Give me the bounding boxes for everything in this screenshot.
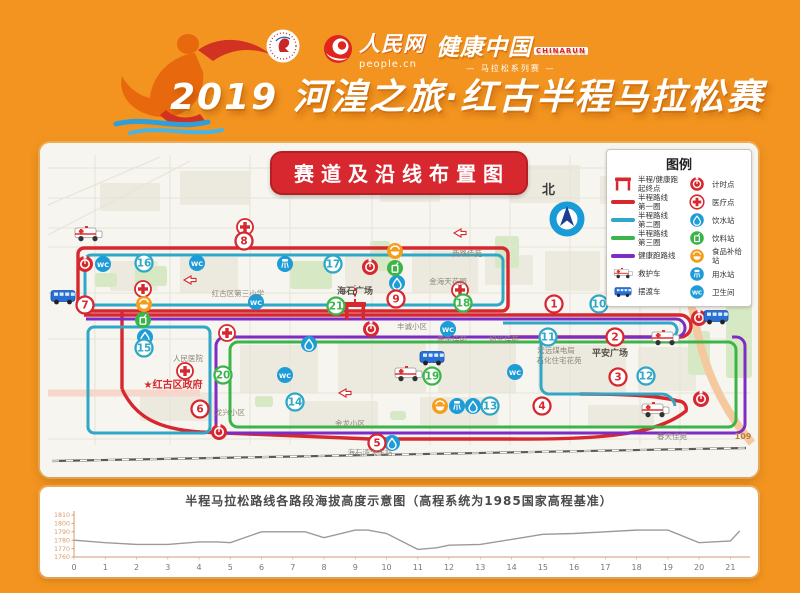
svg-text:0: 0 xyxy=(71,563,76,572)
svg-text:1810: 1810 xyxy=(54,512,70,519)
legend-item-label: 半程路线 第一圈 xyxy=(638,193,668,211)
km-marker-15: 15 xyxy=(136,340,153,357)
drink-icon xyxy=(135,312,151,328)
svg-text:7: 7 xyxy=(81,300,88,312)
line-green-swatch xyxy=(611,236,635,240)
event-title: 2019 河湟之旅·红古半程马拉松赛 xyxy=(170,68,750,120)
drink-icon xyxy=(387,260,403,276)
svg-text:15: 15 xyxy=(137,343,152,355)
km-marker-12: 12 xyxy=(638,368,655,385)
svg-text:WC: WC xyxy=(692,290,702,296)
legend-item-right-0: 计时点 xyxy=(684,175,748,193)
svg-text:1770: 1770 xyxy=(54,546,70,553)
svg-text:14: 14 xyxy=(506,563,516,572)
svg-text:9: 9 xyxy=(353,563,358,572)
medical-icon xyxy=(219,325,235,341)
people-cn-logo: 人民网 people.cn xyxy=(322,28,425,70)
map-title-badge: 赛道及沿线布置图 xyxy=(270,151,528,195)
legend-right-column: 计时点医疗点饮水站饮料站食品补给站用水站WC卫生间 xyxy=(684,175,748,301)
legend-item-label: 医疗点 xyxy=(712,198,735,207)
legend-item-right-2: 饮水站 xyxy=(684,211,748,229)
svg-text:WC: WC xyxy=(97,261,109,269)
svg-text:6: 6 xyxy=(196,404,203,416)
legend-item-left-4: 健康跑路线 xyxy=(610,247,684,265)
km-marker-9: 9 xyxy=(388,291,405,308)
legend-item-label: 健康跑路线 xyxy=(638,251,676,260)
legend-item-right-4: 食品补给站 xyxy=(684,247,748,265)
km-marker-16: 16 xyxy=(136,255,153,272)
km-marker-10: 10 xyxy=(591,296,608,313)
medical-icon xyxy=(135,281,151,297)
legend-item-left-3: 半程路线 第三圈 xyxy=(610,229,684,247)
km-marker-4: 4 xyxy=(534,398,551,415)
legend-item-left-0: 半程/健康跑 起终点 xyxy=(610,175,684,193)
north-indicator: 北 xyxy=(538,179,588,244)
map-label: 金海天花园 xyxy=(429,276,467,286)
km-marker-20: 20 xyxy=(215,367,232,384)
km-marker-18: 18 xyxy=(455,295,472,312)
km-marker-11: 11 xyxy=(540,329,557,346)
svg-text:3: 3 xyxy=(165,563,170,572)
wc-icon: WC xyxy=(690,285,704,299)
svg-text:WC: WC xyxy=(442,326,454,334)
km-marker-2: 2 xyxy=(607,329,624,346)
svg-text:7: 7 xyxy=(290,563,295,572)
health-china-name: 健康中国CHINARUN xyxy=(436,28,586,62)
spray-icon xyxy=(449,398,465,414)
svg-text:12: 12 xyxy=(639,371,654,383)
food-icon xyxy=(387,243,403,259)
timing-icon xyxy=(77,256,93,272)
legend-item-left-1: 半程路线 第一圈 xyxy=(610,193,684,211)
legend-item-right-5: 用水站 xyxy=(684,265,748,283)
north-label: 北 xyxy=(542,179,588,198)
map-label: 人民医院 xyxy=(173,353,203,363)
map-label: 西路佳苑 xyxy=(452,248,482,258)
svg-text:16: 16 xyxy=(569,563,579,572)
course-map-panel: WCWCWCWCWCWC 123456789101112131415161718… xyxy=(40,143,758,477)
svg-text:1760: 1760 xyxy=(54,554,70,561)
legend-item-label: 半程路线 第二圈 xyxy=(638,211,668,229)
drink-icon xyxy=(690,231,704,245)
bus-icon xyxy=(615,287,631,296)
svg-text:4: 4 xyxy=(538,401,545,413)
svg-text:WC: WC xyxy=(250,299,262,307)
legend-item-label: 救护车 xyxy=(638,269,661,278)
wc-icon: WC xyxy=(189,255,205,271)
map-label: 宏远煤电局 xyxy=(537,345,575,355)
legend-item-label: 用水站 xyxy=(712,270,735,279)
food-icon xyxy=(690,249,704,263)
legend-left-column: 半程/健康跑 起终点半程路线 第一圈半程路线 第二圈半程路线 第三圈健康跑路线救… xyxy=(610,175,684,301)
timing-icon xyxy=(362,259,378,275)
svg-text:21: 21 xyxy=(329,301,344,313)
svg-text:17: 17 xyxy=(326,259,341,271)
svg-text:9: 9 xyxy=(392,294,399,306)
legend-item-left-6: 摆渡车 xyxy=(610,283,684,301)
map-label: 109 xyxy=(735,432,752,441)
km-marker-3: 3 xyxy=(610,369,627,386)
elevation-line xyxy=(74,530,740,549)
km-marker-6: 6 xyxy=(192,401,209,418)
svg-text:19: 19 xyxy=(663,563,673,572)
people-cn-name: 人民网 xyxy=(359,28,425,58)
km-marker-7: 7 xyxy=(77,297,94,314)
gate-icon xyxy=(615,178,631,191)
wc-icon: WC xyxy=(277,367,293,383)
svg-text:1: 1 xyxy=(550,299,557,311)
legend-item-label: 计时点 xyxy=(712,180,735,189)
km-marker-17: 17 xyxy=(325,256,342,273)
map-label: 旭光佳苑 xyxy=(489,334,519,344)
legend-item-label: 饮料站 xyxy=(712,234,735,243)
people-cn-swirl-icon xyxy=(322,33,354,65)
drop-icon xyxy=(465,398,481,414)
map-label: 红古区第三小学 xyxy=(212,288,265,298)
legend-item-right-6: WC卫生间 xyxy=(684,283,748,301)
km-marker-19: 19 xyxy=(424,368,441,385)
svg-text:18: 18 xyxy=(632,563,642,572)
timing-icon xyxy=(690,177,704,191)
svg-text:WC: WC xyxy=(509,369,521,377)
legend-item-label: 半程路线 第三圈 xyxy=(638,229,668,247)
legend-item-label: 卫生间 xyxy=(712,288,735,297)
svg-text:17: 17 xyxy=(600,563,610,572)
svg-text:13: 13 xyxy=(483,401,498,413)
svg-text:20: 20 xyxy=(694,563,704,572)
map-label: 春天佳苑 xyxy=(657,431,687,441)
map-label: 海石广场 xyxy=(337,285,373,297)
spray-icon xyxy=(277,256,293,272)
timing-icon xyxy=(211,424,227,440)
food-icon xyxy=(432,398,448,414)
elevation-chart-title: 半程马拉松路线各路段海拔高度示意图（高程系统为1985国家高程基准） xyxy=(40,492,758,509)
timing-icon xyxy=(693,391,709,407)
svg-text:19: 19 xyxy=(425,371,440,383)
legend-item-left-2: 半程路线 第二圈 xyxy=(610,211,684,229)
svg-text:11: 11 xyxy=(541,332,556,344)
svg-text:13: 13 xyxy=(475,563,485,572)
map-label: 康乐佳苑 xyxy=(437,334,467,344)
svg-text:1800: 1800 xyxy=(54,521,70,528)
map-label: ★红古区政府 xyxy=(144,378,203,391)
map-legend: 图例 半程/健康跑 起终点半程路线 第一圈半程路线 第二圈半程路线 第三圈健康跑… xyxy=(606,149,752,307)
map-label: 海石湾大车站 xyxy=(348,447,393,457)
legend-title: 图例 xyxy=(610,154,748,173)
svg-text:12: 12 xyxy=(444,563,454,572)
drop-icon xyxy=(690,213,704,227)
medical-icon xyxy=(690,195,704,209)
km-marker-14: 14 xyxy=(287,394,304,411)
food-icon xyxy=(136,296,152,312)
map-label: 平安广场 xyxy=(592,347,628,359)
svg-text:1780: 1780 xyxy=(54,537,70,544)
legend-item-label: 摆渡车 xyxy=(638,287,661,296)
elevation-chart: 1760177017801790180018100123456789101112… xyxy=(40,509,758,577)
drop-icon xyxy=(389,275,405,291)
svg-text:8: 8 xyxy=(240,236,247,248)
svg-text:20: 20 xyxy=(216,370,231,382)
legend-item-right-1: 医疗点 xyxy=(684,193,748,211)
header: 人民网 people.cn 健康中国CHINARUN — 马拉松系列赛 — 20… xyxy=(0,0,800,143)
svg-text:14: 14 xyxy=(288,397,303,409)
svg-text:5: 5 xyxy=(228,563,233,572)
wc-icon: WC xyxy=(507,364,523,380)
spray-icon xyxy=(690,267,704,281)
svg-text:WC: WC xyxy=(279,372,291,380)
line-red-swatch xyxy=(611,200,635,204)
ambulance-icon xyxy=(614,267,632,277)
svg-text:10: 10 xyxy=(381,563,391,572)
map-label: 石化住宅花苑 xyxy=(537,355,582,365)
line-purple-swatch xyxy=(611,254,635,258)
chinarun-tag: CHINARUN xyxy=(534,47,588,55)
map-label: 金龙小区 xyxy=(335,418,365,428)
athletics-association-badge-icon xyxy=(264,27,302,65)
timing-icon xyxy=(363,321,379,337)
legend-item-label: 半程/健康跑 起终点 xyxy=(638,175,678,193)
svg-text:15: 15 xyxy=(538,563,548,572)
line-teal-swatch xyxy=(611,218,635,222)
km-marker-8: 8 xyxy=(236,233,253,250)
km-marker-21: 21 xyxy=(328,298,345,315)
medical-icon xyxy=(177,363,193,379)
svg-text:16: 16 xyxy=(137,258,152,270)
svg-text:1790: 1790 xyxy=(54,529,70,536)
svg-text:3: 3 xyxy=(614,372,621,384)
svg-text:10: 10 xyxy=(592,299,607,311)
legend-item-label: 食品补给站 xyxy=(712,247,748,265)
svg-text:21: 21 xyxy=(725,563,735,572)
km-marker-1: 1 xyxy=(546,296,563,313)
km-marker-13: 13 xyxy=(482,398,499,415)
svg-text:6: 6 xyxy=(259,563,264,572)
svg-text:8: 8 xyxy=(321,563,326,572)
drop-icon xyxy=(301,336,317,352)
svg-text:2: 2 xyxy=(134,563,139,572)
elevation-chart-panel: 半程马拉松路线各路段海拔高度示意图（高程系统为1985国家高程基准） 17601… xyxy=(40,487,758,577)
svg-text:1: 1 xyxy=(103,563,108,572)
compass-icon xyxy=(546,198,588,240)
map-label: 龙兴小区 xyxy=(215,407,245,417)
legend-item-label: 饮水站 xyxy=(712,216,735,225)
map-label: 丰诚小区 xyxy=(397,321,427,331)
wc-icon: WC xyxy=(95,256,111,272)
legend-item-right-3: 饮料站 xyxy=(684,229,748,247)
svg-text:4: 4 xyxy=(196,563,201,572)
svg-text:11: 11 xyxy=(413,563,423,572)
legend-item-left-5: 救护车 xyxy=(610,265,684,283)
svg-text:WC: WC xyxy=(191,260,203,268)
svg-text:2: 2 xyxy=(611,332,618,344)
svg-text:18: 18 xyxy=(456,298,471,310)
